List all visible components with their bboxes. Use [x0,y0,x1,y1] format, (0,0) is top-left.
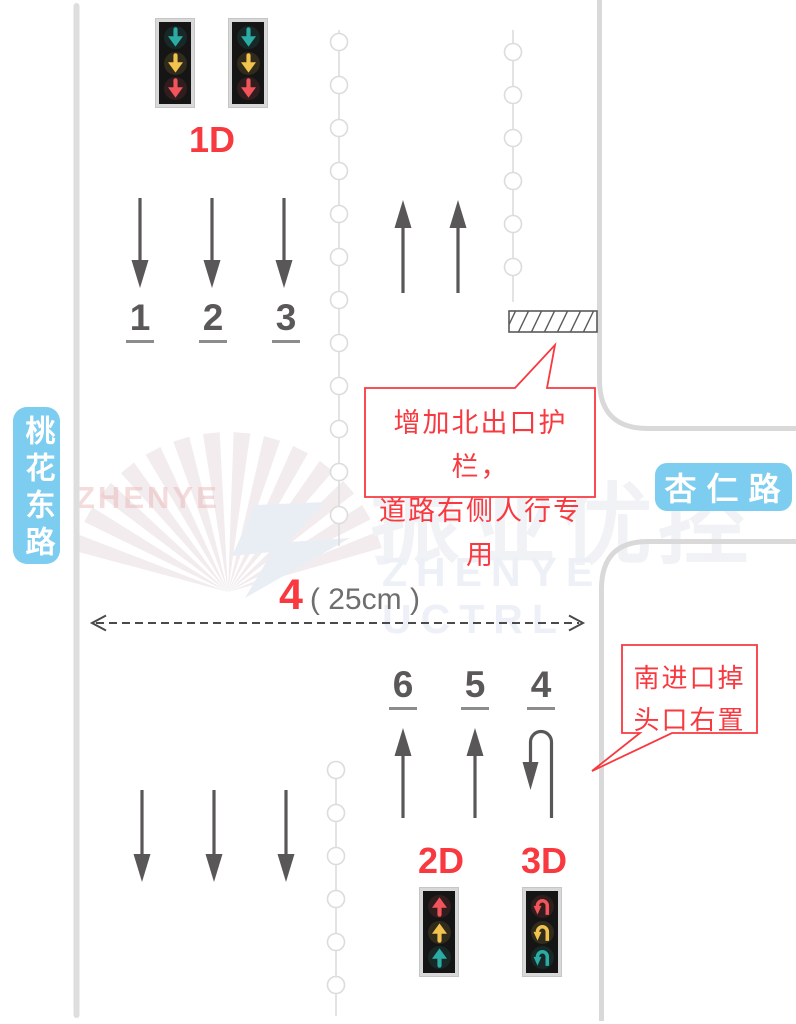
down-lane-arrow [206,790,223,882]
traffic-lane-diagram: ZHENYE 振业优控 ZHENYE UCTRL [0,0,796,1024]
lane-divider-circle-line [505,30,522,302]
down-lane-arrow [204,198,221,288]
up-arrow-icon [427,894,452,919]
up-lane-arrow [395,200,412,293]
down-lane-arrow [278,790,295,882]
signal-group-label-3d: 3D [514,840,574,882]
signal-head-north-1 [156,19,194,107]
east-road-edge-bottom [602,542,796,1022]
down-arrow-icon [163,51,188,76]
up-lane-arrow [467,728,484,818]
signal-head-south-uturn [523,888,561,976]
dimension-size: ( 25cm ) [310,583,420,617]
down-lane-arrow [132,198,149,288]
u-turn-arrow-icon [530,920,555,945]
down-arrow-icon [236,51,261,76]
down-arrow-icon [236,25,261,50]
lane-divider-circle-line [331,30,348,546]
lane-number: 1 [116,297,164,343]
signal-group-label-1d: 1D [182,119,242,161]
callout-north-text: 增加北出口护栏， 道路右侧人行专用 [368,401,593,577]
u-turn-arrow-icon [530,945,555,970]
lane-number: 6 [379,664,427,710]
lane-number: 4 [517,664,565,710]
up-arrow-icon [427,920,452,945]
road-name-east: 杏仁路 [655,463,792,511]
up-lane-arrow [450,200,467,293]
down-lane-arrow [276,198,293,288]
lane-number: 2 [189,297,237,343]
up-arrow-icon [427,945,452,970]
barrier-hatch [504,308,608,335]
down-arrow-icon [236,76,261,101]
lane-number: 3 [262,297,310,343]
lane-divider-circle-line [328,762,345,1017]
up-lane-arrow [395,728,412,818]
signal-head-south-straight [420,888,458,976]
u-turn-arrow [523,732,552,818]
down-arrow-icon [163,76,188,101]
u-turn-arrow-icon [530,894,555,919]
callout-south-text: 南进口掉 头口右置 [623,657,756,741]
down-arrow-icon [163,25,188,50]
east-road-edge-top [600,0,796,429]
lane-number: 5 [451,664,499,710]
signal-head-north-2 [229,19,267,107]
median-dimension-label: 4 ( 25cm ) [279,571,420,620]
road-name-west: 桃花东路 [13,407,60,564]
down-lane-arrow [134,790,151,882]
dimension-number: 4 [279,571,303,620]
signal-group-label-2d: 2D [411,840,471,882]
